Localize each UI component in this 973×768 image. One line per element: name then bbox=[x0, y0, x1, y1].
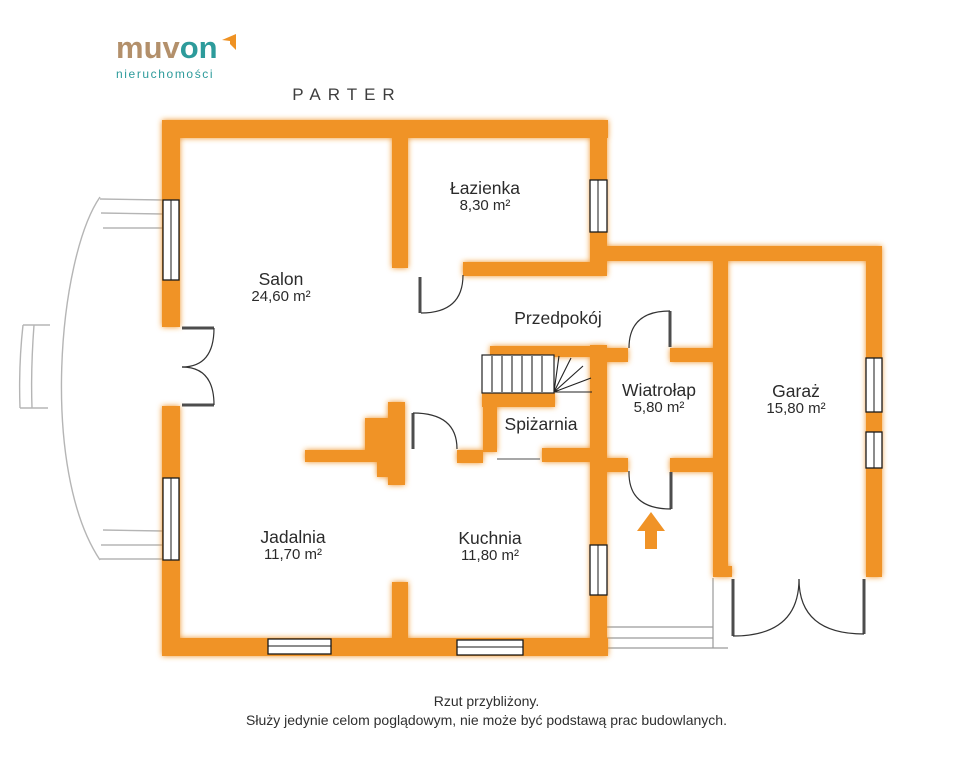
wall-garage-left-jamb bbox=[713, 566, 732, 577]
floorplan-drawing bbox=[0, 0, 973, 768]
wall-lazienka-bottom bbox=[463, 262, 607, 276]
plan-title: PARTER bbox=[292, 85, 401, 105]
wall-wiatrolap-top-b bbox=[670, 348, 713, 362]
room-label-kuchnia: Kuchnia 11,80 m² bbox=[458, 529, 521, 565]
window-salon-left bbox=[163, 200, 179, 280]
agency-logo: muvon nieruchomości bbox=[116, 32, 242, 80]
room-name: Salon bbox=[251, 270, 310, 288]
room-label-spizarnia: Spiżarnia bbox=[505, 415, 578, 433]
window-jadalnia-left bbox=[163, 478, 179, 560]
entrance-porch-steps bbox=[606, 578, 728, 648]
window-kuchnia-bottom bbox=[457, 640, 523, 655]
wall-bottom bbox=[162, 638, 608, 656]
room-name: Jadalnia bbox=[260, 528, 325, 546]
window-kuchnia-right bbox=[590, 545, 607, 595]
room-name: Przedpokój bbox=[514, 309, 602, 327]
disclaimer-line-2: Służy jedynie celom poglądowym, nie może… bbox=[0, 711, 973, 730]
room-area: 8,30 m² bbox=[450, 198, 520, 215]
wall-wiatrolap-bottom-a bbox=[590, 458, 628, 472]
logo-text-muv: muv bbox=[116, 30, 180, 65]
door-entrance bbox=[629, 471, 671, 509]
wall-spizarnia-left bbox=[483, 395, 497, 452]
window-garage-right-upper bbox=[866, 358, 882, 412]
door-wiatrolap bbox=[629, 311, 670, 348]
disclaimer: Rzut przybliżony. Służy jedynie celom po… bbox=[0, 692, 973, 730]
wall-wiatrolap-top-a bbox=[607, 348, 628, 362]
room-area: 5,80 m² bbox=[622, 400, 696, 417]
wall-kitchen-right bbox=[590, 345, 607, 656]
wall-spizarnia-stub bbox=[457, 450, 483, 463]
room-area: 11,80 m² bbox=[458, 548, 521, 565]
room-name: Kuchnia bbox=[458, 529, 521, 547]
logo-wordmark: muvon bbox=[116, 32, 242, 63]
disclaimer-line-1: Rzut przybliżony. bbox=[0, 692, 973, 711]
wall-garage-left bbox=[713, 255, 728, 577]
wall-garage-top bbox=[590, 246, 882, 261]
window-lazienka-right bbox=[590, 180, 607, 232]
room-label-lazienka: Łazienka 8,30 m² bbox=[450, 179, 520, 215]
door-garage-double bbox=[733, 579, 864, 636]
stairs bbox=[482, 355, 592, 393]
bent-arrow-icon bbox=[220, 32, 242, 54]
wall-wiatrolap-bottom-b bbox=[670, 458, 713, 472]
room-area: 15,80 m² bbox=[766, 401, 825, 418]
chimney-block bbox=[365, 418, 388, 462]
doors bbox=[182, 275, 864, 636]
window-garage-right-lower bbox=[866, 432, 882, 468]
door-french-salon bbox=[182, 328, 214, 405]
terrace-outline bbox=[20, 197, 163, 560]
wall-spizarnia-bottom bbox=[542, 448, 590, 462]
door-lazienka bbox=[420, 275, 463, 313]
room-name: Łazienka bbox=[450, 179, 520, 197]
room-label-salon: Salon 24,60 m² bbox=[251, 270, 310, 306]
wall-top bbox=[162, 120, 608, 138]
room-label-przedpokoj: Przedpokój bbox=[514, 309, 602, 327]
window-jadalnia-bottom bbox=[268, 639, 331, 654]
entrance-arrow-icon bbox=[637, 512, 665, 549]
room-label-wiatrolap: Wiatrołap 5,80 m² bbox=[622, 381, 696, 417]
room-name: Wiatrołap bbox=[622, 381, 696, 399]
room-label-garaz: Garaż 15,80 m² bbox=[766, 382, 825, 418]
room-name: Spiżarnia bbox=[505, 415, 578, 433]
room-area: 24,60 m² bbox=[251, 289, 310, 306]
floorplan-page: muvon nieruchomości PARTER Salon 24,60 m… bbox=[0, 0, 973, 768]
door-kuchnia bbox=[413, 413, 457, 449]
room-name: Garaż bbox=[766, 382, 825, 400]
logo-text-on: on bbox=[180, 30, 218, 65]
chimney-lower-block bbox=[377, 462, 405, 477]
wall-jadalnia-kuchnia-stub bbox=[392, 582, 408, 638]
logo-tagline: nieruchomości bbox=[116, 68, 242, 80]
wall-salon-lazienka bbox=[392, 138, 408, 268]
room-label-jadalnia: Jadalnia 11,70 m² bbox=[260, 528, 325, 564]
wall-chimney-arm bbox=[305, 450, 365, 462]
room-area: 11,70 m² bbox=[260, 547, 325, 564]
